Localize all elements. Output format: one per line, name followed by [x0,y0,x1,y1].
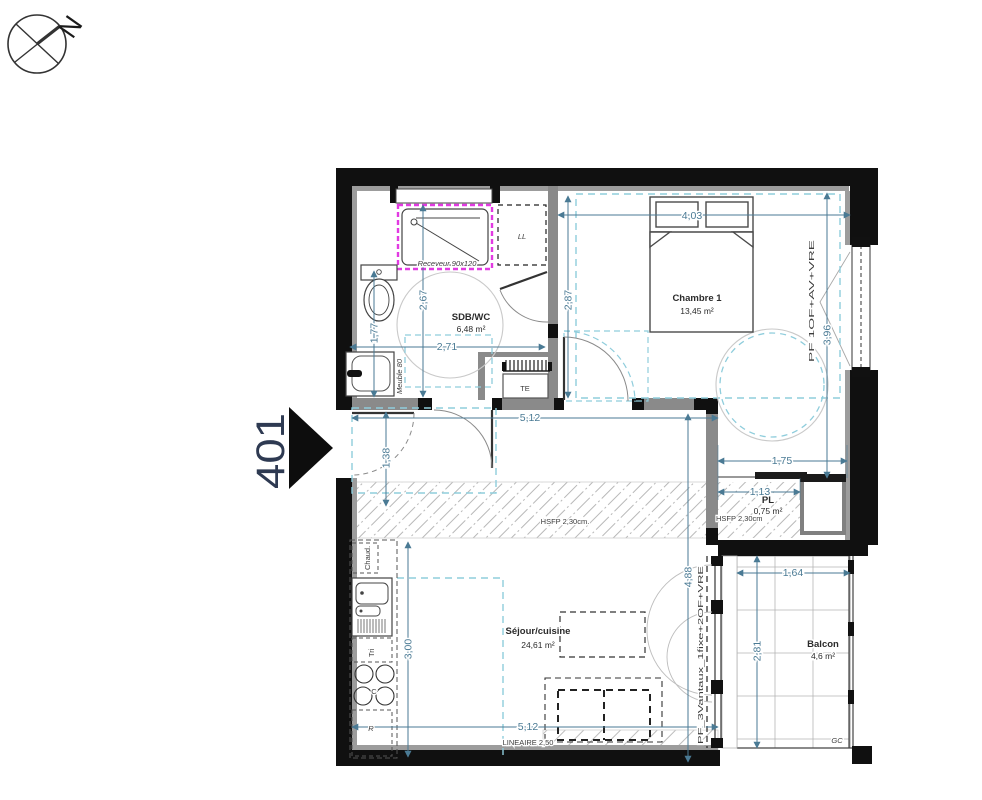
washing-machine-label: LL [518,232,526,241]
chambre-door-clearance [564,331,648,401]
electrical-panel-label: TE [520,384,530,393]
bathroom-fixtures [346,189,552,398]
unit-number-label: 401 [249,413,293,489]
unit-marker: 401 [249,407,333,489]
technical-shaft [800,474,846,533]
niche-shelf [396,189,492,203]
washbasin-label: Meuble 80 [395,358,404,394]
dim-sdb-left-depth: 1,77 [369,323,381,344]
lineaire-label: LINEAIRE 2,50 [503,738,554,747]
dim-chambre-width: 4,03 [682,210,703,222]
table-outline [560,612,645,657]
dim-chambre-depth-left: 2,87 [563,290,575,311]
hsfp-pl-label: HSFP 2,30cm [716,514,763,523]
dim-sdb-depth: 2,67 [418,290,430,311]
boiler-label: Chaud. [363,546,372,570]
floor-plan-drawing: N 401 [0,0,982,800]
compass: N [8,10,89,73]
faucet-icon [347,370,362,377]
balcon-name: Balcon [807,639,839,650]
washbasin-icon [346,352,394,396]
balcony-top-wall [718,540,868,556]
dim-kitchen-length: 3,00 [403,639,415,660]
sdb-name: SDB/WC [452,312,491,323]
fridge-label: R [368,724,374,733]
sdb-area: 6,48 m² [457,324,486,334]
floor-plan-page: N 401 [0,0,982,800]
sejour-window-label: PF_3Vantaux_1fixe+2OF+VRE [696,566,705,744]
window-swing-icon [820,252,850,366]
chambre-name: Chambre 1 [672,293,722,304]
chambre-area: 13,45 m² [680,306,714,316]
dim-hall-width: 5,12 [520,412,541,424]
sdb-turning-circle [397,272,503,378]
towel-radiator-icon [502,360,552,371]
pl-name: PL [762,495,774,506]
cooktop-icon [354,665,394,705]
dim-pl-zone-width: 1,75 [772,455,793,467]
compass-north-label: N [53,10,89,43]
hsfp-corridor-label: HSFP 2,30cm. [541,517,590,526]
balcony-corner-wall [852,746,872,764]
ll-closet-door [500,272,548,322]
dim-sdb-width: 2,71 [437,341,458,353]
guardrail-label: GC [831,736,843,745]
sink-icon [352,578,392,636]
sejour-name: Séjour/cuisine [506,626,571,637]
tri-label: Tri [367,648,376,657]
sejour-area: 24,61 m² [521,640,555,650]
dim-balcon-depth: 2,81 [752,641,764,662]
dim-sejour-depth: 4,88 [683,567,695,588]
toilet-icon [361,265,397,321]
entrance-arrow-icon [289,407,333,489]
shower-label: Receveur 90x120 [418,259,478,268]
chambre-door [564,337,628,401]
chambre-window-label: PF 1OF+AV+VRE [807,240,816,362]
sdb-door [434,410,492,468]
sejour-zone-boundary [397,578,503,756]
dim-chambre-depth-right: 3,96 [822,325,834,346]
balcon-area: 4,6 m² [811,651,835,661]
dim-balcon-width: 1,64 [783,567,804,579]
hsfp-corridor-zone [352,482,706,538]
cooktop-label: C [371,687,377,696]
entry-zone [352,408,496,493]
te-closet-wall [478,352,485,400]
pl-sliding-door [718,472,807,479]
dim-entry-depth: 1,38 [381,448,393,469]
dim-sejour-width: 5,12 [518,721,539,733]
